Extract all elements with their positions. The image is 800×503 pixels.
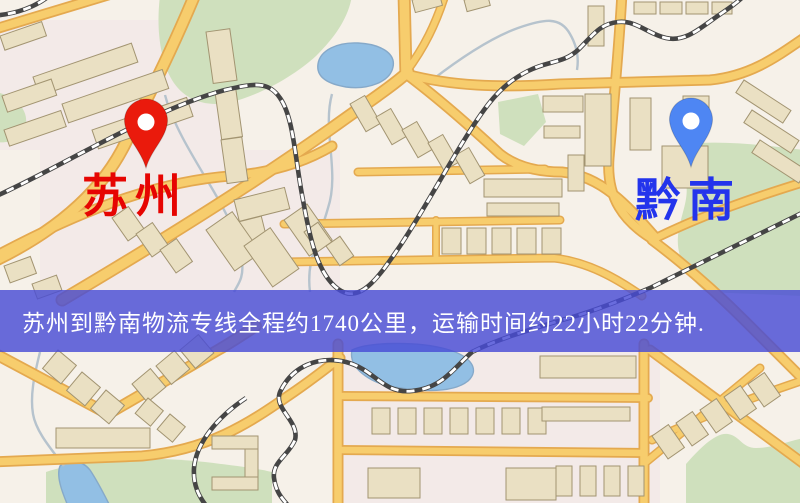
route-info-text: 苏州到黔南物流专线全程约1740公里，运输时间约22小时22分钟.: [22, 304, 705, 338]
route-info-banner: 苏州到黔南物流专线全程约1740公里，运输时间约22小时22分钟.: [0, 290, 800, 352]
destination-pin-icon: [663, 93, 719, 169]
map-screenshot: 苏州到黔南物流专线全程约1740公里，运输时间约22小时22分钟. 苏州 黔南: [0, 0, 800, 503]
origin-pin-icon: [118, 94, 174, 170]
map-image: [0, 0, 800, 503]
destination-city-label: 黔南: [635, 178, 741, 224]
origin-city-label: 苏州: [82, 174, 188, 220]
